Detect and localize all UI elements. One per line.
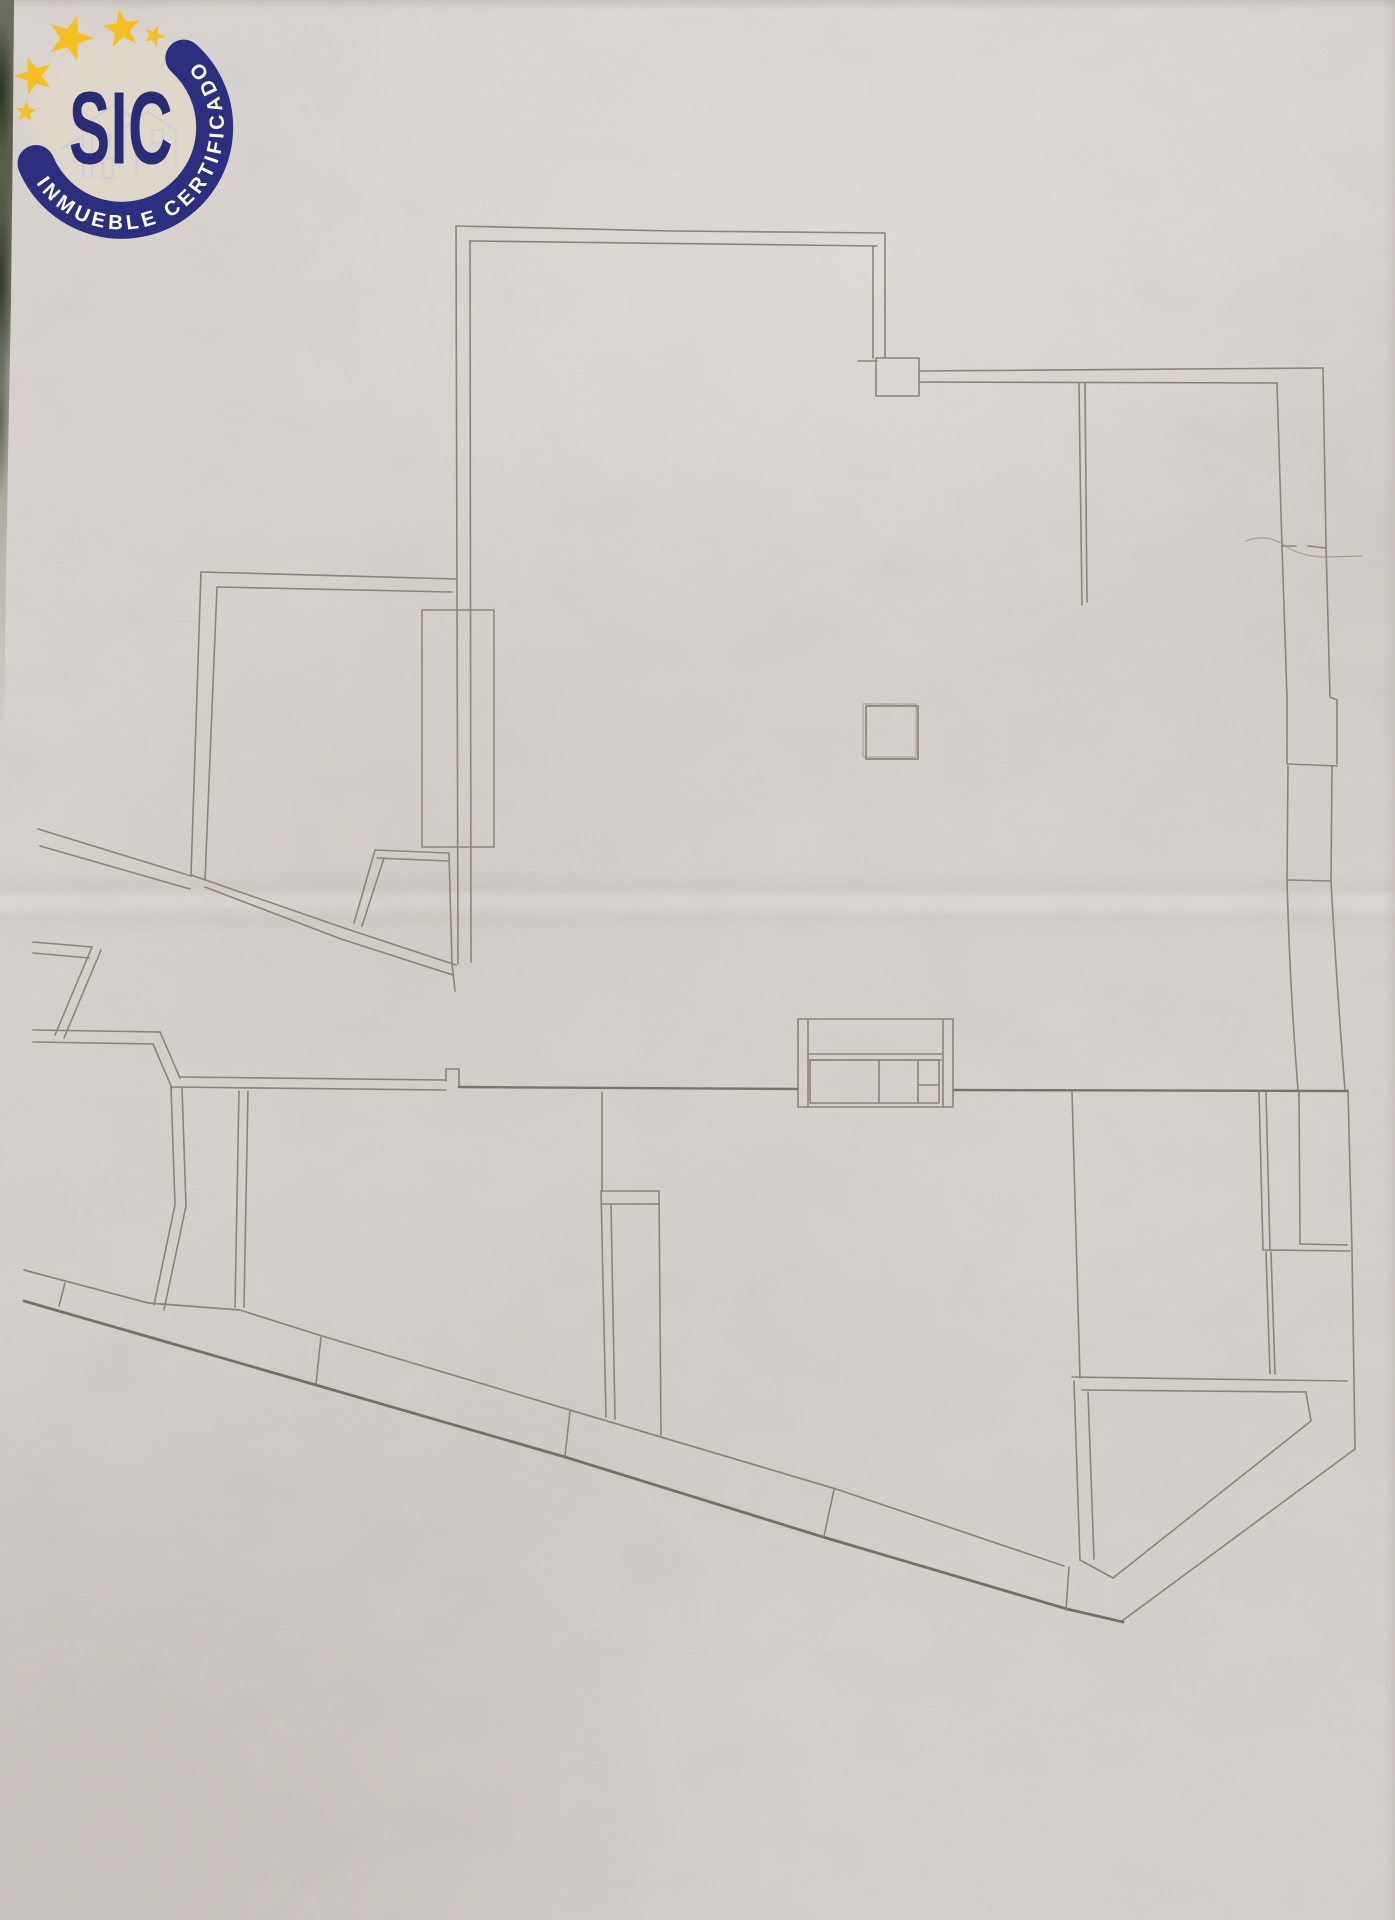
svg-text:SIC: SIC	[69, 70, 173, 185]
